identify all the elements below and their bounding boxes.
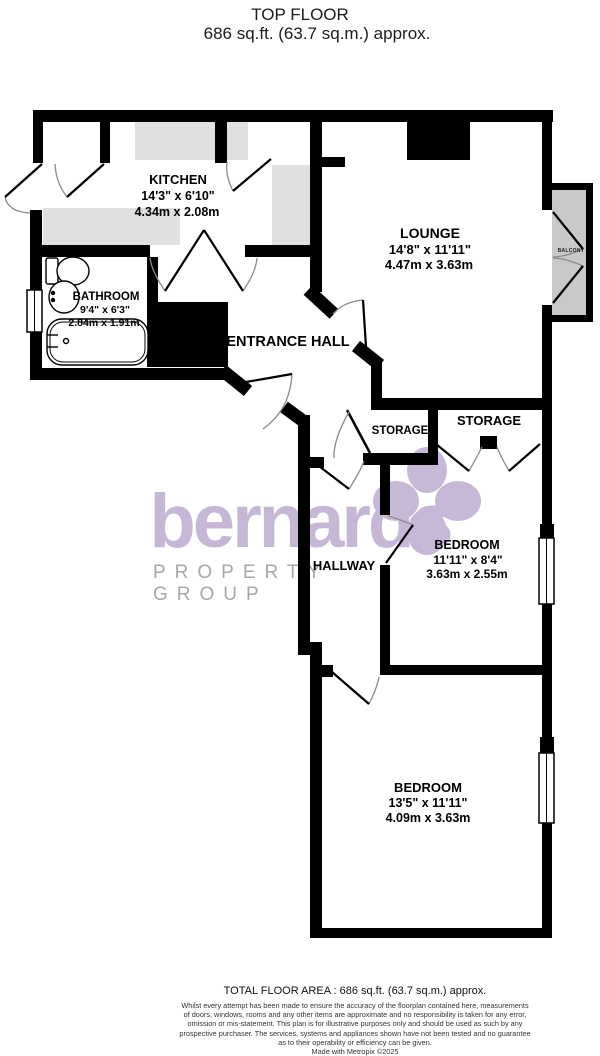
page-title: TOP FLOOR (251, 5, 349, 25)
bathroom-dims-metric: 2.84m x 1.91m (68, 318, 139, 330)
disclaimer-line: of doors, windows, rooms and any other i… (115, 1010, 595, 1019)
hallway-label: HALLWAY (313, 559, 375, 573)
storage-right-label: STORAGE (457, 414, 521, 428)
total-floor-area: TOTAL FLOOR AREA : 686 sq.ft. (63.7 sq.m… (115, 985, 595, 997)
bedroom2-dims-metric: 4.09m x 3.63m (386, 812, 471, 826)
floorplan-page: TOP FLOOR 686 sq.ft. (63.7 sq.m.) approx… (0, 0, 600, 1056)
footer: TOTAL FLOOR AREA : 686 sq.ft. (63.7 sq.m… (115, 985, 595, 1056)
kitchen-dims-imperial: 14'3" x 6'10" (141, 190, 214, 204)
lounge-dims-imperial: 14'8" x 11'11" (389, 243, 471, 257)
balcony-label: BALCONY (558, 249, 585, 255)
bedroom2-dims-imperial: 13'5" x 11'11" (389, 797, 468, 811)
bedroom2-label: BEDROOM (394, 781, 462, 795)
entrance-hall-label: ENTRANCE HALL (226, 335, 349, 351)
disclaimer-line: omission or mis-statement. This plan is … (115, 1019, 595, 1028)
disclaimer-line: as to their operability or efficiency ca… (115, 1038, 595, 1047)
bedroom1-dims-metric: 3.63m x 2.55m (426, 568, 507, 581)
metropix-credit: Made with Metropix ©2025 (115, 1047, 595, 1056)
bathroom-dims-imperial: 9'4" x 6'3" (80, 305, 130, 317)
page-subtitle-area: 686 sq.ft. (63.7 sq.m.) approx. (204, 24, 431, 44)
lounge-dims-metric: 4.47m x 3.63m (385, 258, 473, 272)
bedroom1-dims-imperial: 11'11" x 8'4" (433, 554, 502, 567)
bathroom-label: BATHROOM (73, 291, 140, 304)
storage-left-label: STORAGE (372, 425, 429, 438)
bedroom1-label: BEDROOM (434, 539, 499, 553)
disclaimer-line: Whilst every attempt has been made to en… (115, 1001, 595, 1010)
lounge-label: LOUNGE (400, 226, 460, 241)
floorplan-drawing (0, 0, 600, 1056)
kitchen-label: KITCHEN (149, 173, 207, 187)
kitchen-dims-metric: 4.34m x 2.08m (135, 206, 220, 220)
disclaimer-line: prospective purchaser. The services, sys… (115, 1029, 595, 1038)
